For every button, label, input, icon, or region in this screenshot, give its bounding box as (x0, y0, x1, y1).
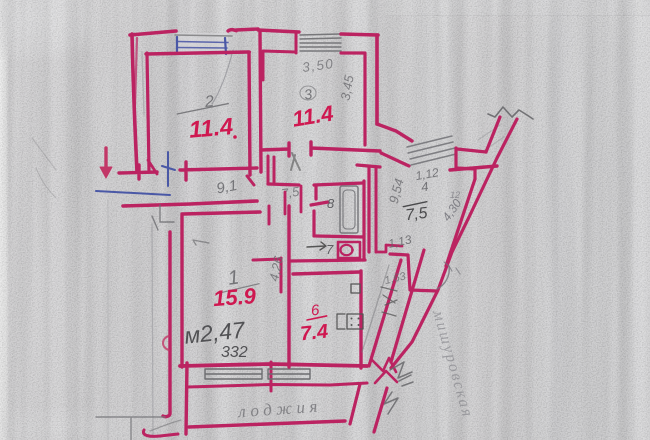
svg-text:332: 332 (221, 344, 248, 361)
svg-text:7,5: 7,5 (404, 205, 428, 225)
svg-text:7: 7 (326, 242, 334, 257)
svg-text:8: 8 (327, 196, 335, 211)
svg-text:7,5: 7,5 (280, 184, 301, 201)
svg-text:12: 12 (450, 190, 460, 200)
svg-text:9,1: 9,1 (215, 177, 238, 197)
svg-text:7.4: 7.4 (299, 321, 329, 346)
svg-text:15.9: 15.9 (212, 283, 257, 311)
svg-text:11.4: 11.4 (188, 113, 234, 143)
